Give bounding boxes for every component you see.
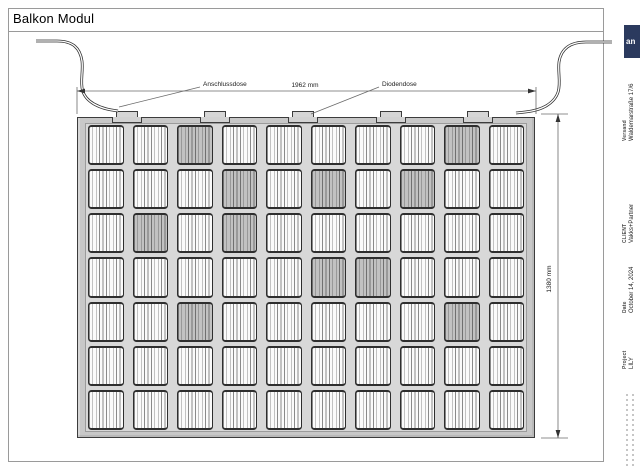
solar-cell bbox=[133, 390, 169, 430]
solar-cell bbox=[355, 257, 391, 297]
solar-cell bbox=[400, 390, 436, 430]
solar-cell bbox=[444, 125, 480, 165]
solar-cell bbox=[177, 125, 213, 165]
solar-cell bbox=[266, 213, 302, 253]
solar-cell bbox=[489, 257, 525, 297]
solar-cell bbox=[400, 169, 436, 209]
solar-cell bbox=[222, 390, 258, 430]
solar-cell bbox=[444, 302, 480, 342]
solar-cell bbox=[444, 257, 480, 297]
titleblock-value: LILY bbox=[629, 351, 636, 369]
sheet-border-left bbox=[8, 8, 9, 462]
solar-cell bbox=[133, 302, 169, 342]
right-cable-core bbox=[516, 42, 612, 113]
solar-cell bbox=[489, 125, 525, 165]
drawing-sheet: Balkon Modul Anschlussdose Diodendose 19… bbox=[0, 0, 640, 473]
solar-cell bbox=[222, 257, 258, 297]
junction-box-base bbox=[200, 117, 230, 123]
solar-cell bbox=[311, 169, 347, 209]
height-arrow-bottom-icon bbox=[556, 430, 561, 438]
junction-box-base bbox=[288, 117, 318, 123]
titleblock-value: Vakks+Partner bbox=[629, 204, 636, 243]
solar-cell bbox=[355, 302, 391, 342]
solar-cell bbox=[177, 257, 213, 297]
solar-cell bbox=[266, 346, 302, 386]
solar-cell bbox=[311, 257, 347, 297]
solar-cell bbox=[444, 346, 480, 386]
width-dimension-text: 1962 mm bbox=[277, 82, 333, 89]
solar-cell bbox=[133, 213, 169, 253]
titleblock-entry-address: Versand Waldemarstraße 17/6 bbox=[623, 84, 636, 141]
solar-cell bbox=[222, 169, 258, 209]
solar-cell bbox=[177, 302, 213, 342]
diode-box-leader bbox=[311, 87, 379, 114]
solar-cell bbox=[355, 125, 391, 165]
solar-cell bbox=[177, 390, 213, 430]
solar-cell bbox=[311, 213, 347, 253]
solar-cell bbox=[489, 169, 525, 209]
solar-cell bbox=[133, 125, 169, 165]
titleblock-value: Waldemarstraße 17/6 bbox=[629, 84, 636, 141]
solar-cell bbox=[266, 125, 302, 165]
sheet-border-bottom bbox=[8, 461, 604, 462]
solar-cell bbox=[355, 213, 391, 253]
solar-cell bbox=[266, 390, 302, 430]
solar-cell bbox=[400, 257, 436, 297]
solar-cell bbox=[444, 390, 480, 430]
solar-cell bbox=[88, 302, 124, 342]
solar-cell bbox=[133, 257, 169, 297]
solar-cell bbox=[133, 169, 169, 209]
solar-cell bbox=[88, 390, 124, 430]
solar-cell bbox=[266, 257, 302, 297]
solar-cell bbox=[88, 169, 124, 209]
page-title: Balkon Modul bbox=[13, 11, 94, 26]
solar-cell bbox=[222, 213, 258, 253]
solar-cell bbox=[311, 125, 347, 165]
junction-box-base bbox=[463, 117, 493, 123]
fine-print bbox=[626, 394, 628, 466]
solar-cell bbox=[177, 213, 213, 253]
height-dimension-text: 1380 mm bbox=[546, 256, 553, 302]
solar-cell bbox=[489, 346, 525, 386]
solar-cell bbox=[444, 169, 480, 209]
height-arrow-top-icon bbox=[556, 114, 561, 122]
junction-box-label: Anschlussdose bbox=[203, 81, 247, 88]
left-cable-icon bbox=[36, 41, 118, 111]
cell-grid bbox=[88, 125, 524, 430]
left-cable-core bbox=[36, 41, 118, 111]
solar-cell bbox=[400, 346, 436, 386]
junction-box-base bbox=[112, 117, 142, 123]
solar-cell bbox=[311, 346, 347, 386]
titleblock-value: October 14, 2024 bbox=[629, 267, 636, 313]
solar-cell bbox=[88, 213, 124, 253]
solar-cell bbox=[222, 346, 258, 386]
solar-cell bbox=[489, 302, 525, 342]
solar-cell bbox=[355, 390, 391, 430]
solar-cell bbox=[400, 302, 436, 342]
solar-cell bbox=[311, 390, 347, 430]
solar-cell bbox=[133, 346, 169, 386]
solar-cell bbox=[222, 125, 258, 165]
solar-cell bbox=[88, 257, 124, 297]
solar-cell bbox=[489, 390, 525, 430]
solar-cell bbox=[489, 213, 525, 253]
solar-cell bbox=[400, 213, 436, 253]
junction-box-leader bbox=[119, 87, 200, 107]
solar-cell bbox=[266, 302, 302, 342]
titleblock-entry-project: Project LILY bbox=[623, 351, 636, 369]
solar-cell bbox=[355, 346, 391, 386]
solar-cell bbox=[222, 302, 258, 342]
sheet-border-top bbox=[8, 8, 604, 9]
solar-cell bbox=[266, 169, 302, 209]
solar-cell bbox=[311, 302, 347, 342]
diode-box-label: Diodendose bbox=[382, 81, 417, 88]
titleblock-label: Project bbox=[623, 351, 629, 369]
junction-box-base bbox=[376, 117, 406, 123]
title-separator bbox=[8, 31, 604, 32]
width-arrow-right-icon bbox=[528, 89, 536, 94]
logo-text: an bbox=[626, 37, 635, 46]
titleblock-entry-client: CLIENT Vakks+Partner bbox=[623, 204, 636, 243]
solar-cell bbox=[177, 169, 213, 209]
solar-cell bbox=[400, 125, 436, 165]
titleblock-divider bbox=[603, 8, 604, 462]
company-logo: an bbox=[624, 25, 640, 58]
solar-cell bbox=[177, 346, 213, 386]
solar-cell bbox=[88, 125, 124, 165]
solar-cell bbox=[88, 346, 124, 386]
right-cable-icon bbox=[516, 42, 612, 113]
width-arrow-left-icon bbox=[77, 89, 85, 94]
titleblock-entry-date: Date October 14, 2024 bbox=[623, 267, 636, 313]
solar-cell bbox=[444, 213, 480, 253]
fine-print bbox=[632, 394, 634, 466]
solar-cell bbox=[355, 169, 391, 209]
